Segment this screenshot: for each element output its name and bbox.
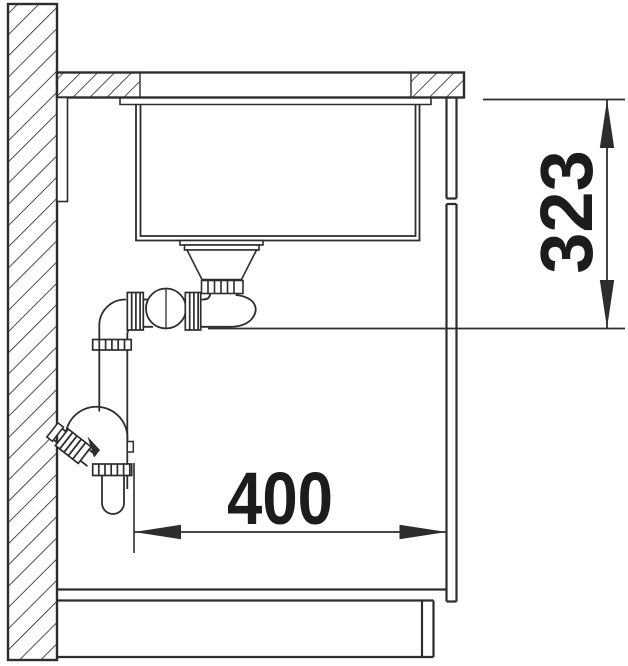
sink: [120, 98, 431, 297]
drain-elbow-right: [201, 295, 256, 327]
dimension-horizontal-label: 400: [227, 457, 333, 540]
dimension-vertical-323: 323: [208, 100, 625, 329]
drain-elbow-left: [99, 299, 126, 340]
drain-pipe-assembly: [93, 289, 256, 465]
dimension-vertical-label: 323: [525, 150, 608, 273]
trap-bracket-tab: [127, 442, 133, 453]
arrowhead-right: [400, 525, 447, 539]
arrowhead-up: [600, 100, 614, 148]
trap-cup: [102, 476, 124, 515]
union-nut-vertical: [93, 340, 132, 351]
cabinet: [57, 98, 457, 658]
siphon-trap: [46, 407, 133, 514]
cabinet-side-panel: [447, 98, 457, 602]
installation-drawing-canvas: 323 400: [0, 0, 628, 666]
drain-strainer: [180, 241, 263, 297]
worktop-cut-right: [411, 73, 464, 98]
cabinet-bottom-shelf: [57, 590, 447, 601]
installation-diagram: 323 400: [0, 0, 628, 666]
wall-mounting-batten: [57, 98, 68, 202]
cabinet-plinth: [422, 601, 434, 658]
worktop: [57, 73, 464, 202]
worktop-cut-left: [57, 73, 140, 98]
trap-lower-nut: [93, 464, 132, 476]
dimension-horizontal-400: 400: [134, 457, 447, 553]
arrowhead-down: [600, 280, 614, 328]
wall-section: [8, 4, 57, 660]
arrowhead-left: [134, 525, 181, 539]
sink-bowl: [136, 105, 420, 241]
